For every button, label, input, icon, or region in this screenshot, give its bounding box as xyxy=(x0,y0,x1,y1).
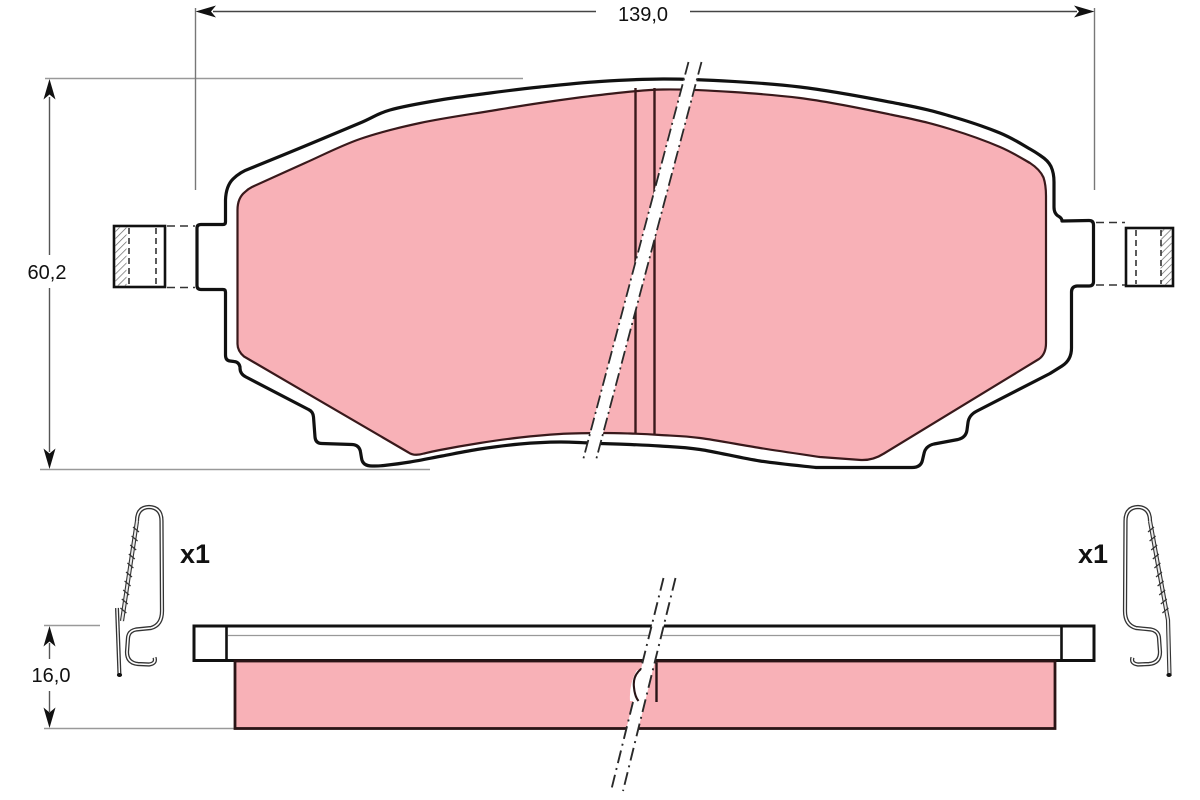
svg-text:16,0: 16,0 xyxy=(32,665,71,687)
svg-text:x1: x1 xyxy=(180,539,210,569)
svg-text:139,0: 139,0 xyxy=(618,4,668,26)
svg-text:x1: x1 xyxy=(1078,539,1108,569)
svg-text:60,2: 60,2 xyxy=(28,262,67,284)
